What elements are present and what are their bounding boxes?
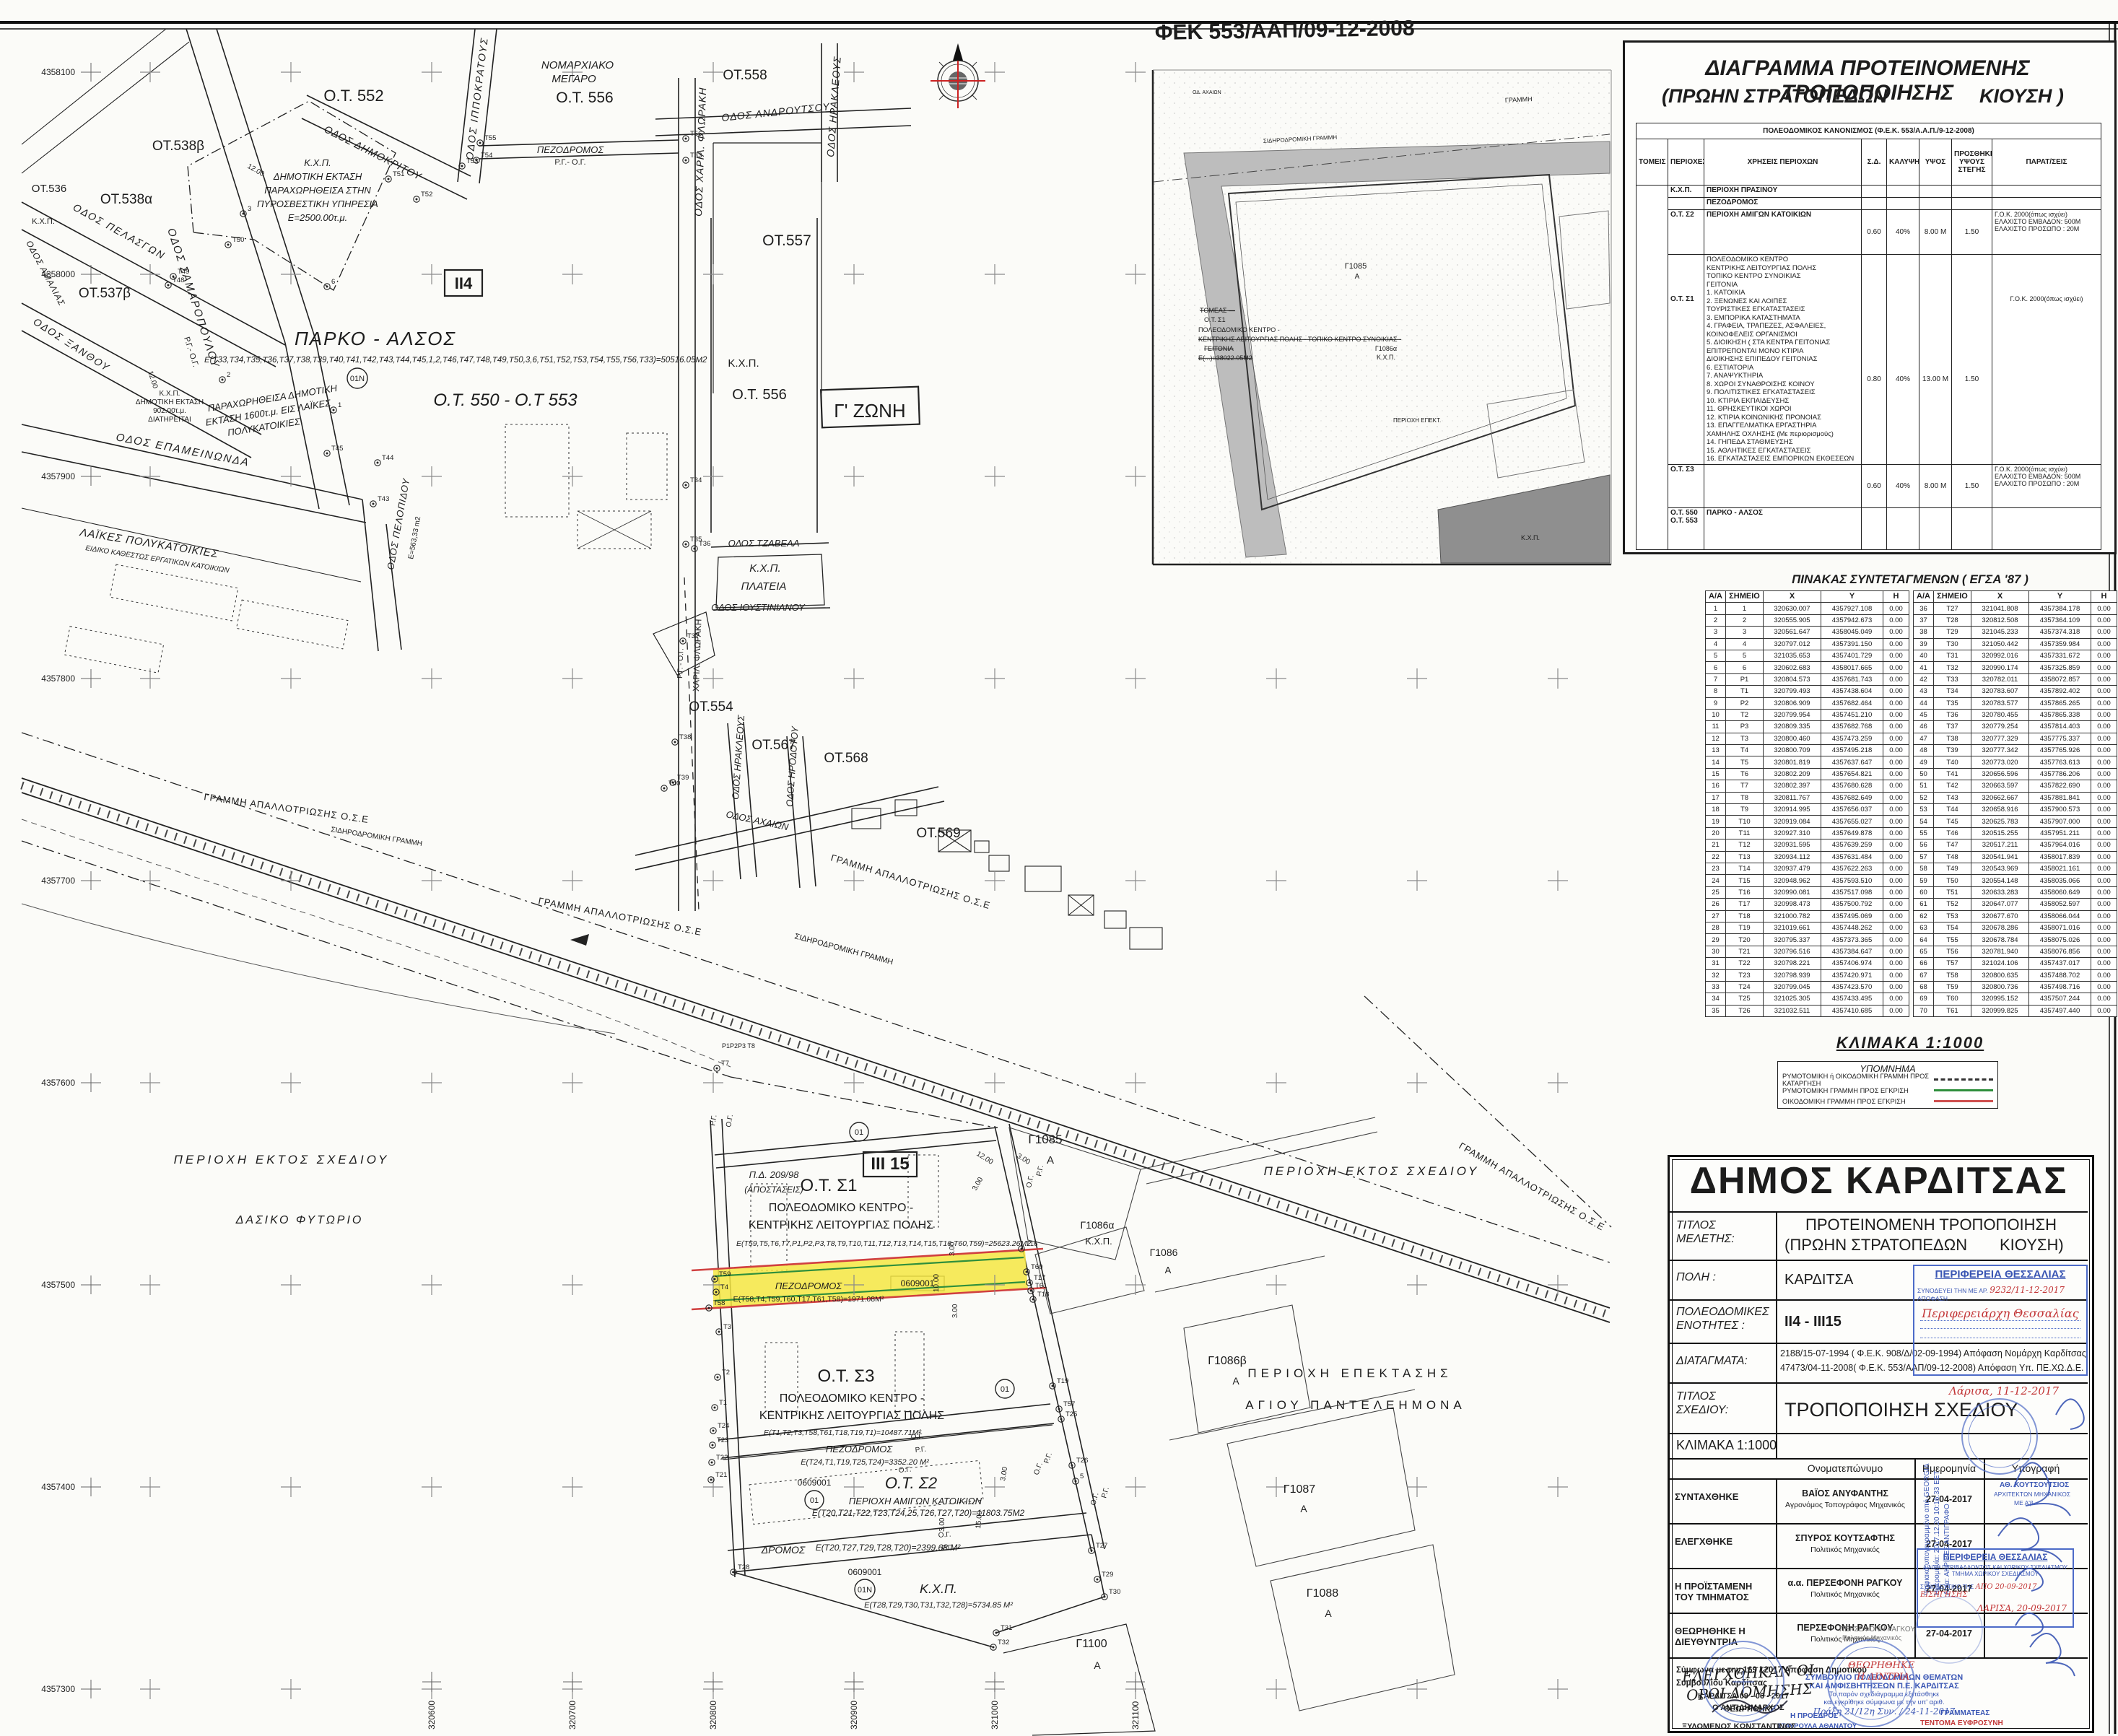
legend-line-sample bbox=[1934, 1078, 1993, 1081]
survey-point: T1 bbox=[712, 1399, 727, 1410]
map-label: ΟΤ.568 bbox=[824, 751, 868, 766]
map-label: Ρ.Γ. bbox=[1042, 1452, 1054, 1465]
coords-row: 63T54320678.2864358071.0160.00 bbox=[1914, 922, 2117, 933]
survey-point: T29 bbox=[1094, 1571, 1114, 1582]
map-label: Π.Δ. 209/98 bbox=[749, 1169, 800, 1180]
grid-cross-icon bbox=[562, 1073, 583, 1093]
survey-point-label: T57 bbox=[1063, 1400, 1075, 1408]
col-kalypsi: ΚΑΛΥΨΗ bbox=[1887, 139, 1919, 186]
coords-row: 66320602.6834358017.6650.00 bbox=[1706, 662, 1909, 673]
grid-cross-icon bbox=[1407, 668, 1427, 689]
survey-point-label: 1 bbox=[338, 401, 341, 409]
grid-cross-icon bbox=[844, 466, 864, 487]
survey-point-label: T30 bbox=[1109, 1588, 1120, 1596]
grid-cross-icon bbox=[140, 466, 160, 487]
grid-cross-icon bbox=[1548, 1679, 1568, 1699]
map-label: ΔΗΜΟΤΙΚΗ ΕΚΤΑΣΗ bbox=[136, 398, 204, 406]
map-label: ΝΟΜΑΡΧΙΑΚΟ bbox=[541, 59, 614, 71]
coords-row: 60T51320633.2834358060.6490.00 bbox=[1914, 886, 2117, 898]
survey-point-label: T61 bbox=[1035, 1282, 1047, 1290]
coords-row: 32T23320798.9394357420.9710.00 bbox=[1706, 969, 1909, 981]
grid-cross-icon bbox=[422, 668, 442, 689]
map-label: ΣΙΔΗΡΟΔΡΟΜΙΚΗ ΓΡΑΜΜΗ bbox=[793, 932, 894, 967]
diatagmata-label: ΔΙΑΤΑΓΜΑΤΑ: bbox=[1676, 1354, 1748, 1368]
coords-row: 43T34320783.6074357892.4020.00 bbox=[1914, 686, 2117, 697]
survey-point-label: T58 bbox=[713, 1299, 725, 1307]
survey-point-label: T1 bbox=[719, 1399, 727, 1407]
symfona-line1: Σύμφωνα με την 169 / 2017 Απόφαση Δημοτι… bbox=[1676, 1666, 1867, 1675]
antidimarxos-name: ΞΥΛΟΜΕΝΟΣ ΚΩΝΣΤΑΝΤΙΝΟΣ bbox=[1682, 1722, 1796, 1731]
x-coordinate-tick-label: 320700 bbox=[567, 1701, 578, 1730]
coords-row: 25T16320990.0814357517.0980.00 bbox=[1706, 886, 1909, 898]
legend-item: ΡΥΜΟΤΟΜΙΚΗ ή ΟΙΚΟΔΟΜΙΚΗ ΓΡΑΜΜΗ ΠΡΟΣ ΚΑΤΑ… bbox=[1782, 1074, 1993, 1085]
coords-row: 13T4320800.7094357495.2180.00 bbox=[1706, 745, 1909, 756]
map-label: Ε(Τ20,Τ27,Τ29,Τ28,Τ20)=2399.68 Μ² bbox=[816, 1543, 961, 1553]
survey-point-label: T59 bbox=[719, 1270, 731, 1278]
diagram-subtitle-right: ΚΙΟΥΣΗ ) bbox=[1979, 85, 2064, 108]
y-coordinate-tick-label: 4357900 bbox=[41, 471, 75, 481]
survey-point: T32 bbox=[990, 1639, 1010, 1650]
coords-row: 45T36320780.4554357865.3380.00 bbox=[1914, 709, 2117, 720]
survey-point-label: T26 bbox=[1076, 1457, 1088, 1465]
map-label: 0609001 bbox=[798, 1478, 832, 1488]
map-label: 12.00 bbox=[246, 162, 266, 178]
map-label: ΟΔ. ΑΧΑΙΩΝ bbox=[1193, 90, 1221, 95]
coords-row: 33T24320799.0454357423.5700.00 bbox=[1706, 981, 1909, 993]
coords-row: 65T56320781.9404358076.8560.00 bbox=[1914, 946, 2117, 957]
map-label: ΚΕΝΤΡΙΚΗΣ ΛΕΙΤΟΥΡΓΙΑΣ ΠΟΛΗΣ bbox=[759, 1410, 944, 1422]
map-label: Ο.Γ. bbox=[910, 1432, 924, 1441]
row-s1-ypsos: 13.00 Μ bbox=[1919, 255, 1952, 465]
map-label: ΟΤ.538α bbox=[100, 192, 152, 207]
titlos-meletis-value2a: (ΠΡΩΗΝ ΣΤΡΑΤΟΠΕΔΩΝ bbox=[1784, 1236, 1967, 1255]
coords-row: 23T14320937.4794357622.2630.00 bbox=[1706, 863, 1909, 874]
survey-point-label: 5 bbox=[1080, 1473, 1084, 1480]
map-label: 12.00 bbox=[975, 1150, 994, 1166]
sig-col-name: Ονοματεπώνυμο bbox=[1776, 1462, 1914, 1474]
titlos-sxediou-value: ΤΡΟΠΟΠΟΙΗΣΗ ΣΧΕΔΙΟΥ bbox=[1784, 1399, 2018, 1421]
coords-row: 67T58320800.6354357488.7020.00 bbox=[1914, 969, 2117, 981]
map-label: ΔΑΣΙΚΟ ΦΥΤΩΡΙΟ bbox=[235, 1214, 364, 1226]
poli-value: ΚΑΡΔΙΤΣΑ bbox=[1784, 1272, 1853, 1288]
map-label: ΠΟΛΕΟΔΟΜΙΚΟ ΚΕΝΤΡΟ - bbox=[1198, 326, 1280, 333]
sector-cell: ΣΤΡΑΤΟΠΕΔΟ ΚΙΟΥΣΗ ( άρθρο 4 Φ.Ε.Κ. 166/Δ… bbox=[1637, 186, 1668, 550]
klimaka-value: ΚΛΙΜΑΚΑ 1:1000 bbox=[1676, 1438, 1777, 1453]
grid-cross-icon bbox=[281, 871, 301, 891]
map-label: ΠΟΛΕΟΔΟΜΙΚΟ ΚΕΝΤΡΟ - bbox=[769, 1202, 913, 1214]
legend-line-sample bbox=[1934, 1100, 1993, 1102]
titlos-sxediou-label: ΤΙΤΛΟΣ ΣΧΕΔΙΟΥ: bbox=[1676, 1390, 1763, 1417]
map-label: ΠΕΡΙΟΧΗ ΕΠΕΚΤΑΣΗΣ bbox=[1247, 1366, 1452, 1380]
row-s1-stegi: 1.50 bbox=[1952, 255, 1992, 465]
antidimarxos-label: Ο ΑΝΤΙΔΗΜΑΡΧΟΣ bbox=[1712, 1704, 1784, 1712]
row-s3-ypsos: 8.00 Μ bbox=[1919, 464, 1952, 507]
grid-cross-icon bbox=[1125, 1073, 1146, 1093]
coords-row: 36T27321041.8084357384.1780.00 bbox=[1914, 603, 2117, 614]
coords-table-right: Α/ΑΣΗΜΕΙΟ ΧΥ Η 36T27321041.8084357384.17… bbox=[1913, 590, 2117, 1017]
y-coordinate-tick-label: 4357300 bbox=[41, 1684, 75, 1694]
col-sd: Σ.Δ. bbox=[1862, 139, 1887, 186]
map-label: 3.00 bbox=[949, 1242, 956, 1256]
grid-cross-icon bbox=[1548, 668, 1568, 689]
map-label: ΠΑΡΑΧΩΡΗΘΕΙΣΑ ΣΤΗΝ bbox=[264, 185, 371, 196]
map-label: Α bbox=[1094, 1659, 1101, 1671]
survey-point-label: T31 bbox=[1001, 1624, 1012, 1632]
direction-stamp-title: ΠΕΡΙΦΕΡΕΙΑ ΘΕΣΣΑΛΙΑΣ bbox=[1918, 1552, 2073, 1562]
survey-point-label: T36 bbox=[699, 540, 710, 548]
survey-point-label: T40 bbox=[668, 780, 680, 788]
titlos-meletis-value1: ΠΡΟΤΕΙΝΟΜΕΝΗ ΤΡΟΠΟΠΟΙΗΣΗ bbox=[1776, 1216, 2086, 1234]
grid-cross-icon bbox=[1407, 1275, 1427, 1295]
coords-row: 9P2320806.9094357682.4640.00 bbox=[1706, 697, 1909, 709]
coords-row: 57T48320541.9414358017.8390.00 bbox=[1914, 851, 2117, 863]
map-label: Ε=563,33 m2 bbox=[407, 515, 422, 559]
map-label: Ο.Τ. Σ1 bbox=[1204, 316, 1226, 323]
coords-row: 41T32320990.1744357325.8590.00 bbox=[1914, 662, 2117, 673]
grid-cross-icon bbox=[281, 1073, 301, 1093]
grid-cross-icon bbox=[1266, 1679, 1286, 1699]
map-label: Ο.Τ. Σ2 bbox=[885, 1474, 937, 1492]
row-s2-parat: Γ.Ο.Κ. 2000(όπως ισχύει) ΕΛΑΧΙΣΤΟ ΕΜΒΑΔΟ… bbox=[1992, 210, 2101, 255]
map-label: Ρ.Γ. bbox=[1035, 1164, 1045, 1177]
survey-point: T25 bbox=[1058, 1410, 1078, 1422]
grid-cross-icon bbox=[140, 1477, 160, 1497]
survey-point-label: T7 bbox=[721, 1060, 729, 1068]
grid-cross-icon bbox=[1548, 1477, 1568, 1497]
grid-cross-icon bbox=[985, 264, 1005, 284]
map-label: ΓΡΑΜΜΗ ΑΠΑΛΛΟΤΡΙΩΣΗΣ Ο.Σ.Ε bbox=[537, 895, 702, 938]
coords-row: 30T21320796.5164357384.6470.00 bbox=[1706, 946, 1909, 957]
map-label: ΑΓΙΟΥ ΠΑΝΤΕΛΕΗΜΟΝΑ bbox=[1245, 1398, 1465, 1412]
col-ypsos: ΥΨΟΣ bbox=[1919, 139, 1952, 186]
map-label: 902.00τ.μ. bbox=[153, 407, 186, 415]
map-label: ΓΡΑΜΜΗ bbox=[1505, 95, 1533, 104]
coords-row: 55321035.6534357401.7290.00 bbox=[1706, 650, 1909, 661]
col-stegi: ΠΡΟΣΘΗΚΗ ΥΨΟΥΣ ΣΤΕΓΗΣ bbox=[1952, 139, 1992, 186]
coords-row: 52T43320662.6674357881.8410.00 bbox=[1914, 792, 2117, 803]
grid-cross-icon bbox=[1266, 871, 1286, 891]
coords-row: 31T22320798.2214357406.9740.00 bbox=[1706, 958, 1909, 969]
coords-row: 12T3320800.4604357473.2590.00 bbox=[1706, 733, 1909, 744]
sig-role: ΕΛΕΓΧΘΗΚΕ bbox=[1675, 1536, 1773, 1547]
coords-row: 27T18321000.7824357495.0690.00 bbox=[1706, 910, 1909, 922]
sig-title: Πολιτικός Μηχανικός bbox=[1776, 1545, 1914, 1554]
survey-point: T34 bbox=[683, 476, 702, 488]
survey-point-label: T21 bbox=[715, 1471, 727, 1479]
grid-cross-icon bbox=[140, 668, 160, 689]
sig-role: ΘΕΩΡΗΘΗΚΕ Η ΔΙΕΥΘΥΝΤΡΙΑ bbox=[1675, 1626, 1773, 1647]
grid-cross-icon bbox=[1125, 62, 1146, 82]
survey-point: T50 bbox=[225, 236, 245, 248]
survey-point-label: T52 bbox=[421, 191, 432, 199]
grid-cross-icon bbox=[562, 871, 583, 891]
map-label: ΟΔΟΣ ΙΟΥΣΤΙΝΙΑΝΟΥ bbox=[711, 602, 806, 613]
grid-cross-icon bbox=[562, 1477, 583, 1497]
direction-stamp-box: ΠΕΡΙΦΕΡΕΙΑ ΘΕΣΣΑΛΙΑΣ Δ/ΝΣΗ ΠΕΡΙΒΑΛΛΟΝΤΟΣ… bbox=[1917, 1548, 2074, 1628]
row-s3-kalypsi: 40% bbox=[1887, 464, 1919, 507]
survey-point: T23 bbox=[710, 1436, 729, 1448]
grid-cross-icon bbox=[844, 62, 864, 82]
survey-point: 6 bbox=[324, 278, 335, 289]
coords-row: 33320561.6474358045.0490.00 bbox=[1706, 627, 1909, 638]
map-label: Κ.Χ.Π. bbox=[1085, 1236, 1112, 1247]
survey-point-label: T19 bbox=[1057, 1377, 1068, 1385]
map-label: P1P2P3 T8 bbox=[722, 1042, 755, 1050]
map-label: Ρ.Γ.- Ο.Γ. bbox=[182, 336, 200, 368]
coords-row: 44T35320783.5774357865.2650.00 bbox=[1914, 697, 2117, 709]
symfona-line2: Συμβουλίου Καρδίτσας bbox=[1676, 1679, 1767, 1688]
signer-title-1: ΑΡΧΙΤΕΚΤΩΝ ΜΗΧΑΝΙΚΟΣ bbox=[1994, 1491, 2070, 1498]
row-s1-perioxi: Ο.Τ. Σ1 bbox=[1668, 255, 1704, 465]
grid-cross-icon bbox=[422, 466, 442, 487]
node-circle-label: 01Ν bbox=[858, 1586, 872, 1595]
map-label: Ε(Τ1,Τ2,Τ3,Τ58,Τ61,Τ18,Τ19,Τ1)=10487.71Μ… bbox=[764, 1429, 921, 1437]
map-label: ΟΤ.537β bbox=[79, 286, 131, 301]
x-coordinate-tick-label: 320900 bbox=[849, 1701, 859, 1730]
grid-cross-icon bbox=[985, 871, 1005, 891]
map-label: ΙΙΙ 15 bbox=[871, 1154, 909, 1174]
map-label: 3.00 bbox=[971, 1176, 985, 1192]
map-label: Ρ.Γ. bbox=[915, 1446, 926, 1454]
grid-cross-icon bbox=[844, 1477, 864, 1497]
coords-row: 28T19321019.6614357448.2620.00 bbox=[1706, 922, 1909, 933]
grid-cross-icon bbox=[844, 1073, 864, 1093]
sig-name: ΒΑΪΟΣ ΑΝΥΦΑΝΤΗΣ bbox=[1776, 1488, 1914, 1499]
grid-cross-icon bbox=[1266, 1275, 1286, 1295]
map-label: Α bbox=[1325, 1608, 1332, 1619]
coords-row: 35T26321032.5114357410.6850.00 bbox=[1706, 1005, 1909, 1016]
titlos-meletis-label: ΤΙΤΛΟΣ ΜΕΛΕΤΗΣ: bbox=[1676, 1218, 1774, 1246]
region-stamp-signatory: Περιφερειάρχη Θεσσαλίας bbox=[1920, 1307, 2080, 1321]
coords-row: 21T12320931.5954357639.2590.00 bbox=[1706, 839, 1909, 851]
map-label: ΟΤ.538β bbox=[152, 139, 204, 154]
grid-cross-icon bbox=[140, 1073, 160, 1093]
map-label: Ρ.Γ. - Ο.Γ. bbox=[676, 648, 685, 679]
grid-cross-icon bbox=[844, 871, 864, 891]
map-label: ΓΡΑΜΜΗ ΑΠΑΛΛΟΤΡΙΩΣΗΣ Ο.Σ.Ε bbox=[1457, 1140, 1607, 1233]
col-parat: ΠΑΡΑΤ/ΣΕΙΣ bbox=[1992, 139, 2101, 186]
map-label: ΠΥΡΟΣΒΕΣΤΙΚΗ ΥΠΗΡΕΣΙΑ bbox=[257, 199, 378, 209]
grid-cross-icon bbox=[1125, 1275, 1146, 1295]
grid-cross-icon bbox=[422, 264, 442, 284]
row-s1-kalypsi: 40% bbox=[1887, 255, 1919, 465]
survey-point-label: 6 bbox=[331, 278, 335, 286]
node-circle-label: 01 bbox=[810, 1496, 819, 1505]
map-label: ΦΕΚ 553/ΑΑΠ/09-12-2008 bbox=[1155, 17, 1415, 45]
y-coordinate-tick-label: 4358100 bbox=[41, 67, 75, 77]
coords-row: 38T29321045.2334357374.3180.00 bbox=[1914, 627, 2117, 638]
row-s2-sd: 0.60 bbox=[1862, 210, 1887, 255]
region-stamp-box: ΠΕΡΙΦΕΡΕΙΑ ΘΕΣΣΑΛΙΑΣ ΣΥΝΟΔΕΥΕΙ ΤΗΝ ΜΕ ΑΡ… bbox=[1913, 1265, 2088, 1376]
map-label: ΟΔΟΣ ΑΧΑΙΩΝ bbox=[725, 808, 790, 832]
survey-point-label: T28 bbox=[738, 1563, 749, 1571]
map-label: ΠΕΡΙΟΧΗ ΕΚΤΟΣ ΣΧΕΔΙΟΥ bbox=[174, 1153, 390, 1166]
coords-row: 10T2320799.9544357451.2100.00 bbox=[1706, 709, 1909, 720]
map-label: ΜΕΓΑΡΟ bbox=[552, 73, 596, 85]
map-label: ΟΤ.558 bbox=[723, 68, 767, 83]
map-label: ΓΡΑΜΜΗ ΑΠΑΛΛΟΤΡΙΩΣΗΣ Ο.Σ.Ε bbox=[204, 791, 370, 825]
node-circle-label: 01Ν bbox=[350, 375, 365, 383]
col-xriseis: ΧΡΗΣΕΙΣ ΠΕΡΙΟΧΩΝ bbox=[1704, 139, 1862, 186]
map-label: Ο.Γ. bbox=[1025, 1174, 1035, 1189]
coords-row: 46T37320779.2544357814.4030.00 bbox=[1914, 721, 2117, 733]
coords-row: 24T15320948.9624357593.5100.00 bbox=[1706, 875, 1909, 886]
map-label: 0609001 bbox=[901, 1278, 935, 1288]
survey-point-label: 3 bbox=[248, 205, 251, 213]
sig-name: ΣΠΥΡΟΣ ΚΟΥΤΣΑΦΤΗΣ bbox=[1776, 1533, 1914, 1543]
coords-row: 19T10320919.0844357655.0270.00 bbox=[1706, 816, 1909, 827]
survey-point: T7 bbox=[714, 1060, 729, 1071]
map-label: Ο.Τ. 556 bbox=[556, 90, 613, 106]
coords-row: 51T42320663.5974357822.6900.00 bbox=[1914, 780, 2117, 792]
grid-cross-icon bbox=[985, 1073, 1005, 1093]
survey-point-label: T54 bbox=[481, 152, 492, 160]
enotites-value: ΙΙ4 - ΙΙΙ15 bbox=[1784, 1314, 1842, 1330]
enotites-label: ΠΟΛΕΟΔΟΜΙΚΕΣ ΕΝΟΤΗΤΕΣ : bbox=[1676, 1305, 1774, 1332]
regulation-table: ΠΟΛΕΟΔΟΜΙΚΟΣ ΚΑΝΟΝΙΣΜΟΣ (Φ.Ε.Κ. 553/Α.Α.… bbox=[1636, 123, 2101, 550]
coords-row: 68T59320800.7364357498.7160.00 bbox=[1914, 981, 2117, 993]
map-label: Ο.Τ. 556 bbox=[732, 387, 787, 403]
map-label: ΓΕΙΤΟΝΙΑ bbox=[1204, 345, 1234, 352]
map-label: ΟΔΟΣ ΤΖΑΒΕΛΑ bbox=[728, 538, 800, 549]
grid-cross-icon bbox=[422, 871, 442, 891]
row-s3-perioxi: Ο.Τ. Σ3 bbox=[1668, 464, 1704, 507]
grid-cross-icon bbox=[140, 1679, 160, 1699]
grid-cross-icon bbox=[1125, 1477, 1146, 1497]
map-label: ΟΤ.554 bbox=[689, 699, 733, 715]
coords-row: 62T53320677.6704358066.0440.00 bbox=[1914, 910, 2117, 922]
map-label: Κ.Χ.Π. bbox=[304, 157, 331, 168]
row-s2-kalypsi: 40% bbox=[1887, 210, 1919, 255]
coords-row: 59T50320554.1484358035.0660.00 bbox=[1914, 875, 2117, 886]
sig-date: 27-04-2017 bbox=[1914, 1628, 1984, 1639]
survey-point: T31 bbox=[993, 1624, 1013, 1636]
grid-cross-icon bbox=[140, 871, 160, 891]
coords-row: 50T41320656.5964357786.2060.00 bbox=[1914, 768, 2117, 780]
grid-cross-icon bbox=[562, 264, 583, 284]
map-label: Ο.Γ. bbox=[938, 1530, 951, 1540]
coords-row: 61T52320647.0774358052.5970.00 bbox=[1914, 899, 2117, 910]
coords-row: 64T55320678.7844358075.0260.00 bbox=[1914, 934, 2117, 946]
grid-cross-icon bbox=[985, 668, 1005, 689]
regulation-table-header: ΠΟΛΕΟΔΟΜΙΚΟΣ ΚΑΝΟΝΙΣΜΟΣ (Φ.Ε.Κ. 553/Α.Α.… bbox=[1637, 123, 2101, 139]
signer-name-1: ΑΘ. ΚΟΥΤΣΟΥΤΣΙΟΣ bbox=[2000, 1481, 2069, 1489]
survey-point-label: T50 bbox=[232, 236, 244, 244]
grid-cross-icon bbox=[1407, 1073, 1427, 1093]
row-kxp-xrisi: ΠΕΡΙΟΧΗ ΠΡΑΣΙΝΟΥ bbox=[1704, 186, 1862, 198]
map-label: Γ1086 bbox=[1150, 1247, 1178, 1258]
survey-point-label: T44 bbox=[382, 454, 393, 462]
y-coordinate-tick-label: 4357800 bbox=[41, 673, 75, 684]
titlos-meletis-value2b: ΚΙΟΥΣΗ) bbox=[2000, 1236, 2064, 1255]
node-circle-label: 01 bbox=[855, 1128, 863, 1137]
coords-row: 15T6320802.2094357654.8210.00 bbox=[1706, 768, 1909, 780]
survey-point-label: T23 bbox=[717, 1436, 728, 1444]
map-label: Γ1085 bbox=[1028, 1133, 1062, 1146]
coords-row: 34T25321025.3054357433.4950.00 bbox=[1706, 993, 1909, 1005]
map-label: Ο.Γ. bbox=[1032, 1462, 1044, 1476]
legend-item: ΟΙΚΟΔΟΜΙΚΗ ΓΡΑΜΜΗ ΠΡΟΣ ΕΓΚΡΙΣΗ bbox=[1782, 1096, 1993, 1107]
map-label: Ρ.Γ. bbox=[1100, 1486, 1111, 1499]
coords-row: 17T8320811.7674357682.6490.00 bbox=[1706, 792, 1909, 803]
survey-point: T22 bbox=[709, 1454, 728, 1465]
map-label: 3.00 bbox=[938, 1517, 946, 1532]
map-label: Ο.Γ. bbox=[898, 1465, 912, 1475]
survey-point-label: T38 bbox=[679, 733, 691, 741]
map-label: ΤΟΜΕΑΣ — bbox=[1200, 307, 1235, 314]
grid-cross-icon bbox=[985, 62, 1005, 82]
map-label: Γ' ΖΩΝΗ bbox=[834, 400, 905, 422]
map-label: ΚΕΝΤΡΙΚΗΣ ΛΕΙΤΟΥΡΓΙΑΣ ΠΟΛΗΣ bbox=[749, 1219, 933, 1231]
grid-cross-icon bbox=[562, 668, 583, 689]
coords-row: 29T20320795.3374357373.3650.00 bbox=[1706, 934, 1909, 946]
map-label: ΠΕΡΙΟΧΗ ΑΜΙΓΩΝ ΚΑΤΟΙΚΙΩΝ bbox=[849, 1496, 982, 1506]
row-s3-stegi: 1.50 bbox=[1952, 464, 1992, 507]
grid-cross-icon bbox=[985, 466, 1005, 487]
map-label: Α bbox=[1355, 273, 1360, 281]
karditsa-date: ΚΑΡΔΙΤΣΑ 09 - 06 - 2017 bbox=[1698, 1692, 1789, 1701]
grid-cross-icon bbox=[140, 264, 160, 284]
coords-row: 58T49320543.9694358021.1610.00 bbox=[1914, 863, 2117, 874]
map-label: ΠΕΖΟΔΡΟΜΟΣ bbox=[537, 144, 604, 155]
survey-point: 1 bbox=[331, 401, 341, 413]
y-coordinate-tick-label: 4357600 bbox=[41, 1078, 75, 1088]
map-label: Ο.Τ. Σ3 bbox=[818, 1366, 875, 1386]
grid-cross-icon bbox=[422, 1477, 442, 1497]
node-circle-label: 01 bbox=[1001, 1385, 1009, 1394]
map-label: ΟΤ.569 bbox=[916, 826, 960, 841]
grid-cross-icon bbox=[422, 1073, 442, 1093]
row-s2-perioxi: Ο.Τ. Σ2 bbox=[1668, 210, 1704, 255]
row-s3-sd: 0.60 bbox=[1862, 464, 1887, 507]
survey-point-label: T18 bbox=[1037, 1291, 1049, 1299]
coords-row: 53T44320658.9164357900.5730.00 bbox=[1914, 804, 2117, 816]
coords-row: 49T40320773.0204357763.6130.00 bbox=[1914, 756, 2117, 768]
sig-col-sig: Υπογραφή bbox=[1984, 1462, 2088, 1474]
map-label: Γ1087 bbox=[1284, 1483, 1316, 1496]
survey-point-label: T17 bbox=[1034, 1274, 1045, 1282]
map-label: Γ1086α bbox=[1081, 1219, 1115, 1231]
survey-point-label: T24 bbox=[718, 1422, 729, 1430]
grid-cross-icon bbox=[422, 1275, 442, 1295]
map-label: Ο.Τ. 552 bbox=[323, 87, 383, 105]
coords-row: 7P1320804.5734357681.7430.00 bbox=[1706, 673, 1909, 685]
map-label: Ρ.Γ.- Ο.Γ. bbox=[554, 158, 585, 167]
map-label: Γ1085 bbox=[1345, 262, 1367, 271]
coords-row: 69T60320995.1524357507.2440.00 bbox=[1914, 993, 2117, 1005]
grid-cross-icon bbox=[703, 668, 723, 689]
survey-point: T45 bbox=[324, 445, 344, 456]
map-label: Α bbox=[1232, 1375, 1239, 1387]
map-label: ΔΡΟΜΟΣ bbox=[761, 1544, 806, 1556]
coords-row: 55T46320515.2554357951.2110.00 bbox=[1914, 827, 2117, 839]
coords-row: 66T57321024.1064357437.0170.00 bbox=[1914, 958, 2117, 969]
map-label: Γ1086β bbox=[1208, 1355, 1247, 1367]
coords-row: 16T7320802.3974357680.6280.00 bbox=[1706, 780, 1909, 792]
row-s1-uses: ΠΟΛΕΟΔΟΜΙΚΟ ΚΕΝΤΡΟ ΚΕΝΤΡΙΚΗΣ ΛΕΙΤΟΥΡΓΙΑΣ… bbox=[1704, 255, 1862, 465]
map-label: Γ1088 bbox=[1307, 1587, 1339, 1600]
hand-gray-1: ΠΕΡΣΕΦΟΝΗ ΡΑΓΚΟΥ bbox=[1839, 1626, 1915, 1634]
grid-cross-icon bbox=[1266, 1073, 1286, 1093]
map-label: ΠΕΡΙΟΧΗ ΕΠΕΚΤ. bbox=[1393, 417, 1441, 424]
grid-cross-icon bbox=[703, 1073, 723, 1093]
row-park-perioxi: Ο.Τ. 550 Ο.Τ. 553 bbox=[1668, 507, 1704, 549]
grid-cross-icon bbox=[281, 264, 301, 284]
col-tomeis: ΤΟΜΕΙΣ bbox=[1637, 139, 1668, 186]
hand-gray-2: Πολιτικός Μηχανικός bbox=[1842, 1634, 1901, 1641]
survey-point-label: T4 bbox=[720, 1283, 728, 1291]
coords-row: 8T1320799.4934357438.6040.00 bbox=[1706, 686, 1909, 697]
